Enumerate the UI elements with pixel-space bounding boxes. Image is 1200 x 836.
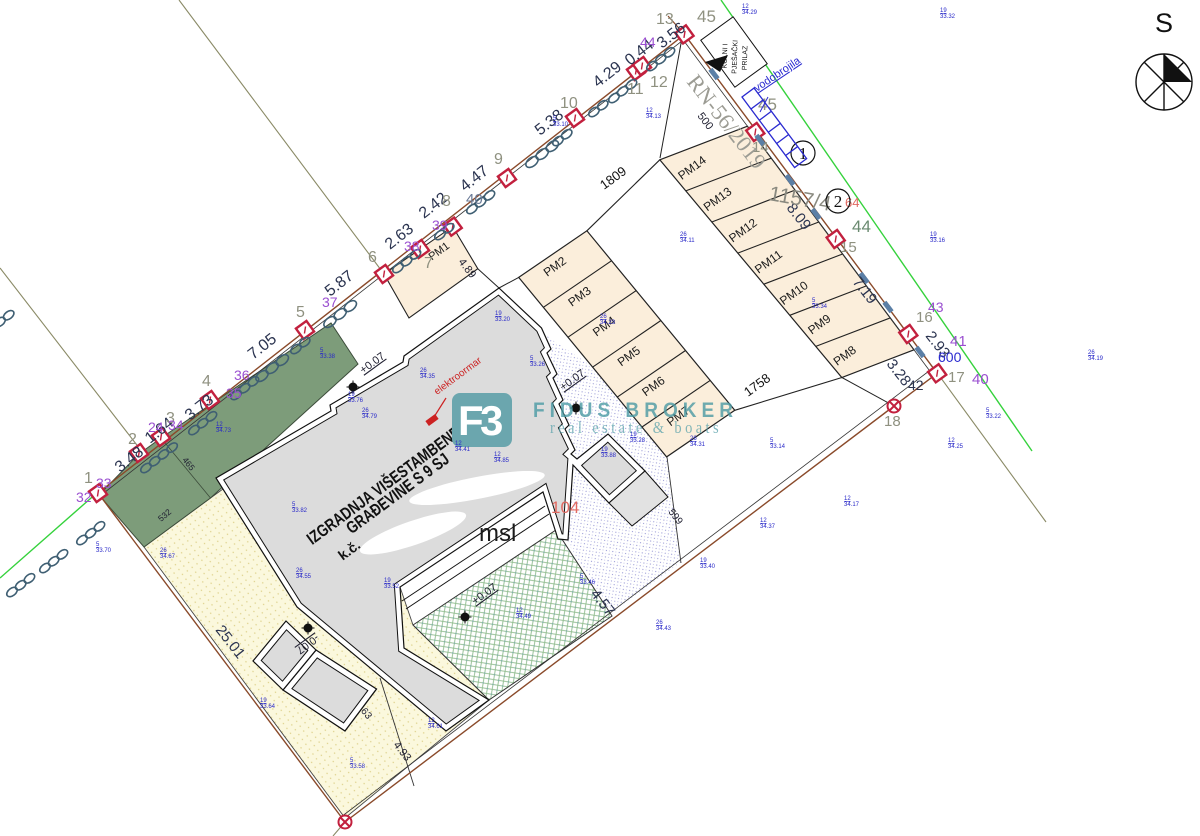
- svg-text:34.23: 34.23: [600, 320, 616, 326]
- svg-text:33.20: 33.20: [495, 317, 511, 323]
- svg-text:10: 10: [560, 95, 578, 112]
- svg-text:msl: msl: [479, 520, 516, 547]
- svg-text:11: 11: [627, 81, 644, 98]
- svg-text:S: S: [1155, 8, 1173, 38]
- svg-text:35: 35: [226, 385, 242, 401]
- svg-text:600: 600: [938, 349, 962, 365]
- svg-text:41: 41: [950, 333, 967, 350]
- svg-text:34.61: 34.61: [428, 724, 444, 730]
- svg-text:33: 33: [96, 475, 112, 491]
- svg-text:34.73: 34.73: [216, 428, 232, 434]
- svg-text:3: 3: [480, 397, 503, 444]
- svg-text:13: 13: [656, 11, 674, 28]
- svg-text:44: 44: [640, 34, 656, 50]
- svg-text:33.26: 33.26: [530, 362, 546, 368]
- svg-text:33.88: 33.88: [601, 453, 617, 459]
- svg-text:33.28: 33.28: [630, 438, 646, 444]
- svg-text:34.37: 34.37: [760, 524, 776, 530]
- svg-text:34.67: 34.67: [160, 554, 176, 560]
- svg-text:34.11: 34.11: [680, 238, 695, 244]
- svg-text:5: 5: [296, 304, 305, 321]
- svg-text:34.31: 34.31: [690, 442, 706, 448]
- svg-text:37: 37: [322, 294, 338, 310]
- svg-text:33.64: 33.64: [260, 704, 276, 710]
- svg-text:24: 24: [148, 419, 164, 435]
- svg-text:33.82: 33.82: [292, 508, 308, 514]
- svg-text:34.29: 34.29: [742, 10, 758, 16]
- svg-text:33.22: 33.22: [986, 414, 1002, 420]
- svg-text:2: 2: [834, 192, 843, 211]
- svg-text:34.19: 34.19: [1088, 356, 1104, 362]
- svg-text:34.35: 34.35: [420, 374, 436, 380]
- svg-text:12: 12: [650, 74, 668, 91]
- svg-text:45: 45: [697, 7, 716, 26]
- svg-text:18: 18: [884, 413, 901, 430]
- svg-text:8: 8: [442, 193, 451, 210]
- svg-text:33.76: 33.76: [348, 398, 364, 404]
- svg-text:15: 15: [840, 239, 857, 256]
- svg-text:33.34: 33.34: [812, 304, 828, 310]
- svg-text:33.10: 33.10: [553, 122, 569, 128]
- svg-text:38: 38: [404, 238, 420, 254]
- svg-text:33.38: 33.38: [320, 354, 336, 360]
- svg-text:104: 104: [551, 498, 579, 517]
- svg-text:9: 9: [494, 151, 503, 168]
- svg-text:34: 34: [168, 417, 184, 433]
- svg-text:39: 39: [432, 217, 448, 233]
- svg-text:34.17: 34.17: [844, 502, 860, 508]
- svg-text:17: 17: [948, 369, 965, 386]
- svg-text:33.58: 33.58: [350, 764, 366, 770]
- svg-text:6: 6: [368, 249, 377, 266]
- svg-text:PRILAZ: PRILAZ: [742, 45, 750, 70]
- svg-text:34.13: 34.13: [646, 114, 662, 120]
- svg-text:33.16: 33.16: [930, 238, 946, 244]
- svg-text:34.55: 34.55: [296, 574, 312, 580]
- svg-text:34.25: 34.25: [948, 444, 964, 450]
- svg-text:1: 1: [84, 470, 93, 487]
- svg-text:33.52: 33.52: [384, 584, 400, 590]
- svg-text:33.40: 33.40: [700, 564, 716, 570]
- svg-text:40: 40: [466, 191, 483, 208]
- svg-text:33.32: 33.32: [940, 14, 956, 20]
- svg-text:33.70: 33.70: [96, 548, 112, 554]
- svg-text:34.79: 34.79: [362, 414, 378, 420]
- svg-text:42: 42: [908, 377, 924, 393]
- svg-text:33.46: 33.46: [580, 580, 596, 586]
- svg-text:36: 36: [234, 367, 250, 383]
- svg-text:33.14: 33.14: [770, 444, 786, 450]
- svg-text:2: 2: [128, 431, 137, 448]
- svg-text:44: 44: [852, 217, 871, 236]
- svg-text:34.85: 34.85: [494, 458, 510, 464]
- svg-text:4: 4: [202, 373, 211, 390]
- svg-text:32: 32: [76, 489, 92, 505]
- svg-text:34.49: 34.49: [516, 614, 532, 620]
- svg-text:7: 7: [424, 255, 433, 272]
- svg-text:64: 64: [845, 195, 859, 210]
- svg-text:40: 40: [972, 371, 989, 388]
- svg-text:43: 43: [928, 299, 944, 315]
- svg-text:34.43: 34.43: [656, 626, 672, 632]
- svg-text:34.41: 34.41: [455, 447, 471, 453]
